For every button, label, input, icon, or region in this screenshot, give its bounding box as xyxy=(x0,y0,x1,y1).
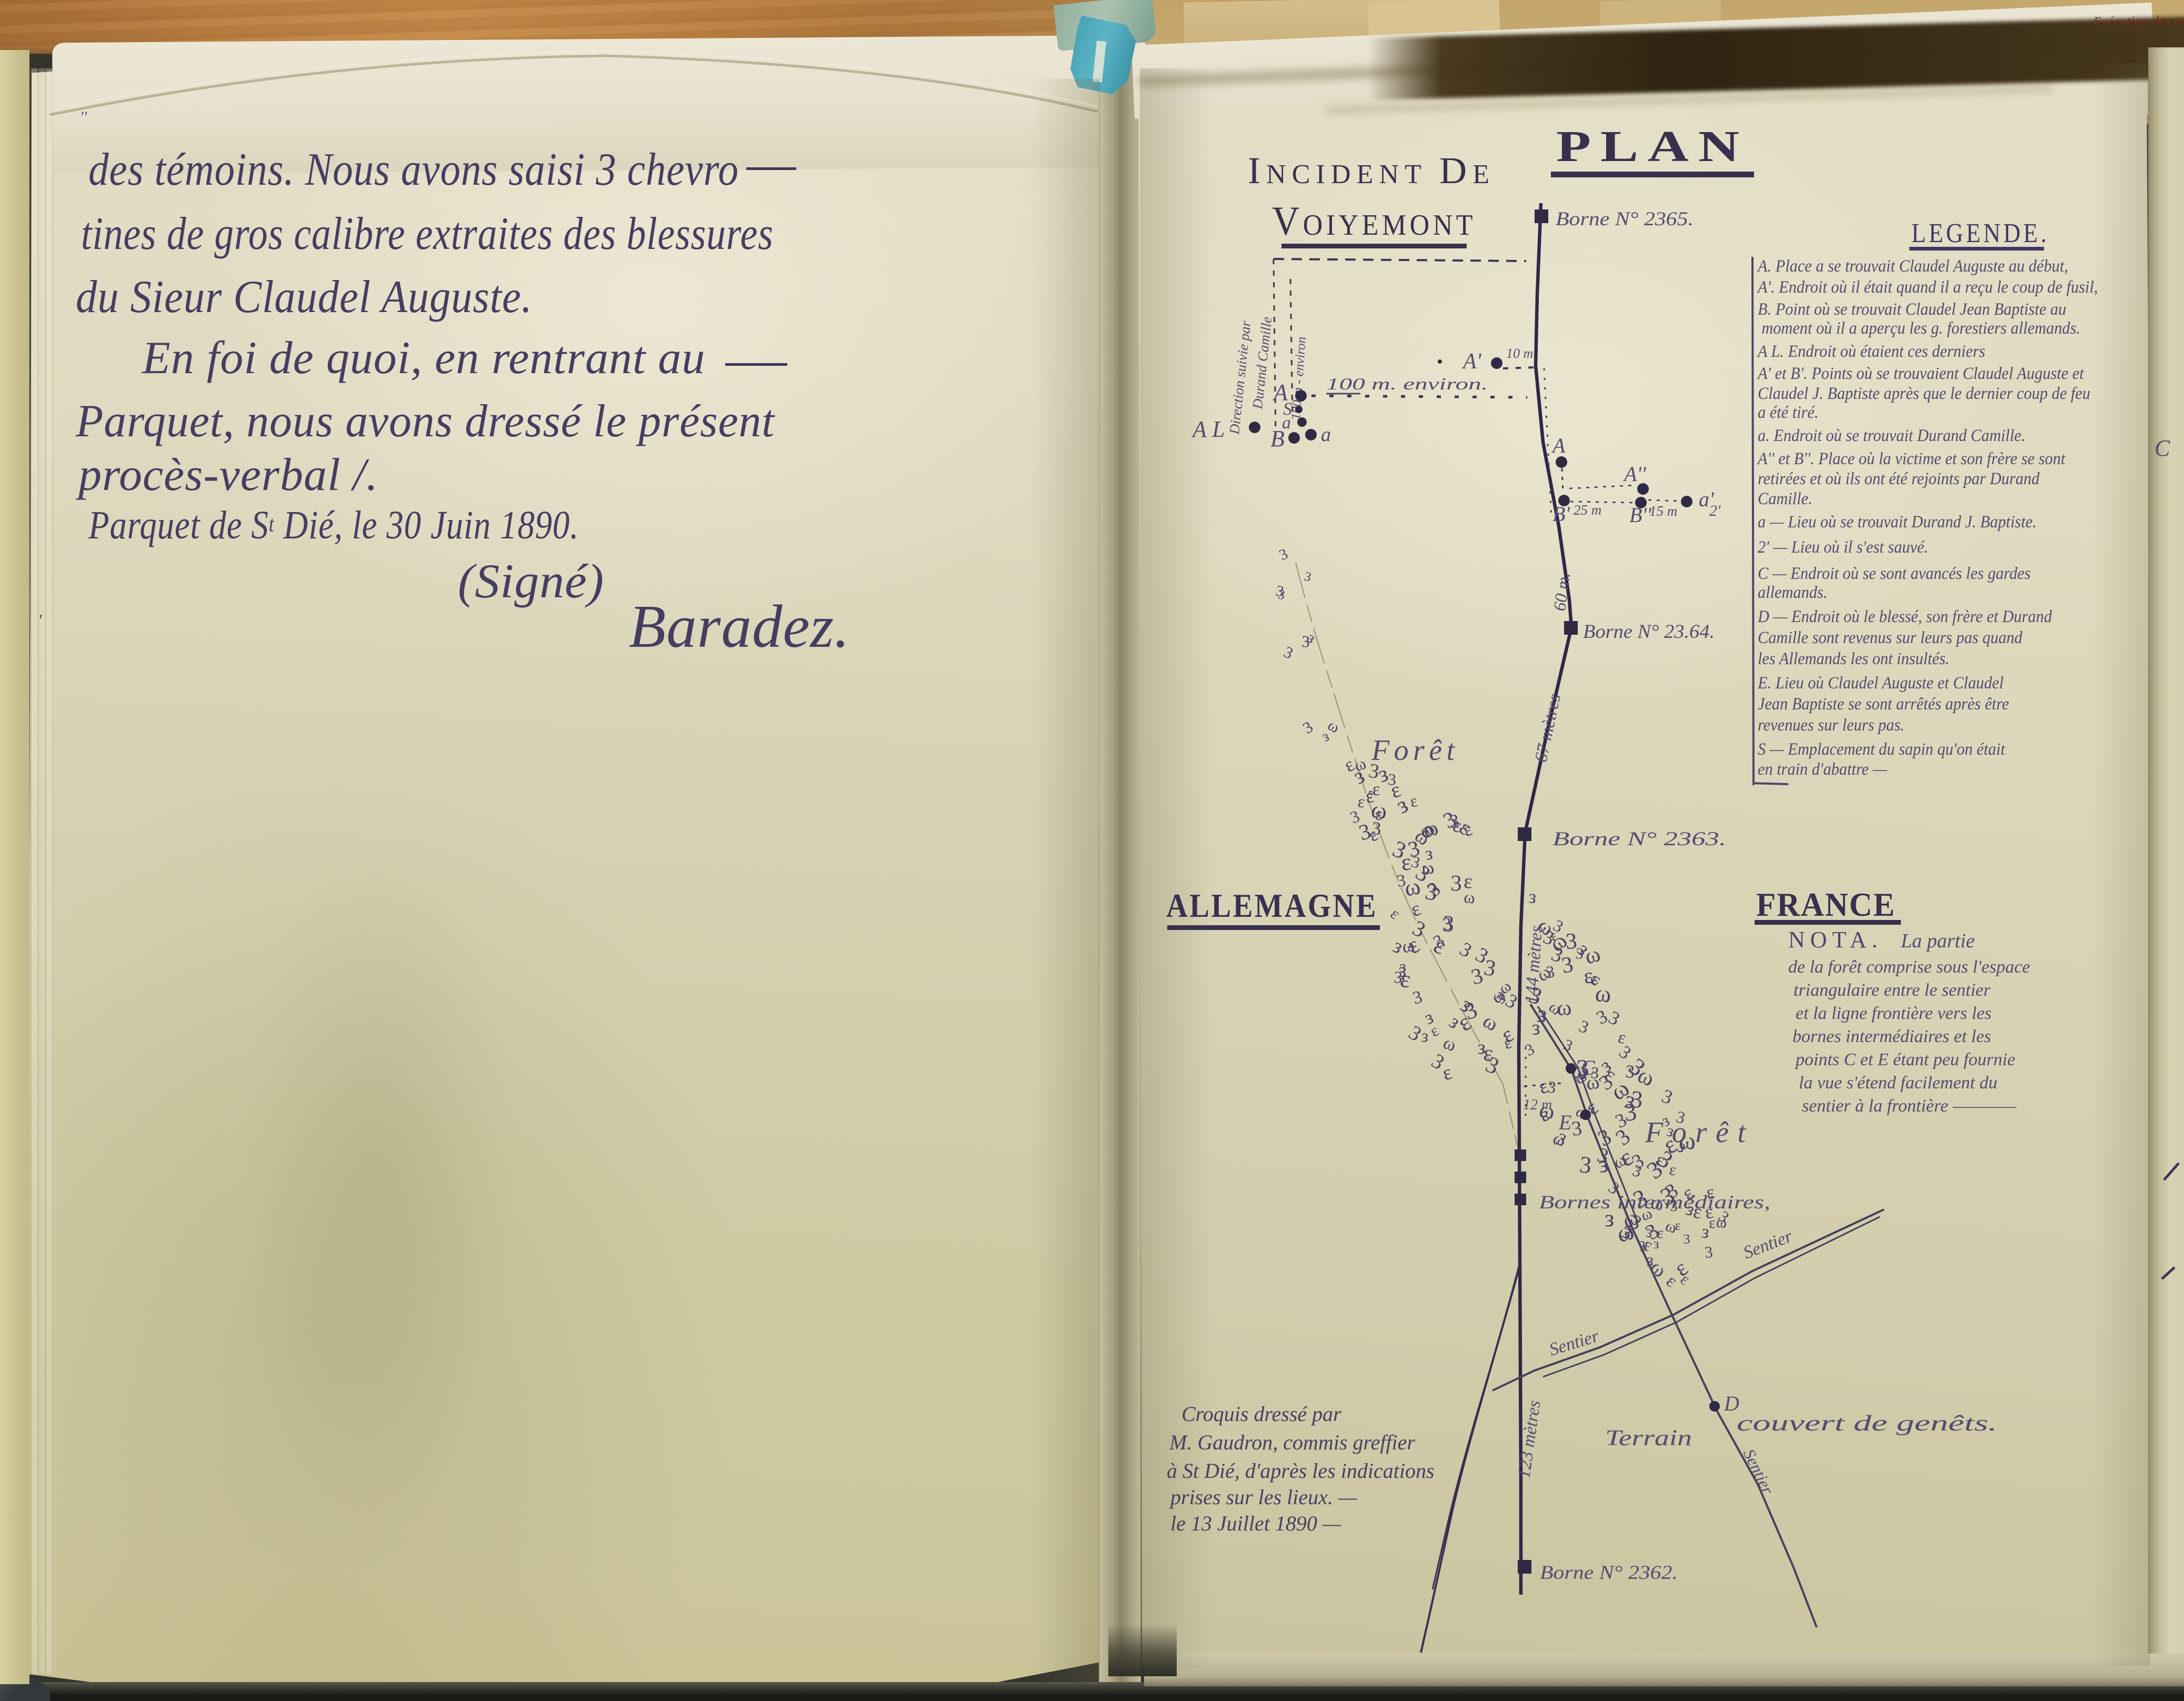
svg-text:3: 3 xyxy=(1456,938,1476,962)
svg-text:Borne N° 2365.: Borne N° 2365. xyxy=(1556,208,1694,230)
svg-text:C: C xyxy=(1581,1056,1596,1079)
svg-text:′′: ′′ xyxy=(80,108,87,126)
svg-text:triangulaire entre le sentier: triangulaire entre le sentier xyxy=(1794,980,1991,1000)
svg-text:à St Dié, d'après les indicati: à St Dié, d'après les indications xyxy=(1167,1459,1435,1483)
svg-text:A' et B'. Points où se trouvai: A' et B'. Points où se trouvaient Claude… xyxy=(1757,364,2085,383)
svg-text:ε: ε xyxy=(1464,870,1473,893)
svg-text:ε: ε xyxy=(1408,791,1419,811)
svg-text:D — Endroit où le blessé, son: D — Endroit où le blessé, son frère et D… xyxy=(1757,607,2052,626)
svg-text:A. Place a se trouvait Claudel: A. Place a se trouvait Claudel Auguste a… xyxy=(1757,256,2068,275)
svg-text:B'': B'' xyxy=(1629,503,1652,527)
svg-text:A'' et B''. Place où la victim: A'' et B''. Place où la victime et son f… xyxy=(1757,449,2066,468)
svg-text:A: A xyxy=(1551,434,1566,457)
svg-text:S — Emplacement du sapin qu'on: S — Emplacement du sapin qu'on était xyxy=(1758,739,2006,758)
svg-text:Borne N° 2363.: Borne N° 2363. xyxy=(1552,828,1726,850)
svg-text:ε: ε xyxy=(1357,792,1366,811)
svg-text:3: 3 xyxy=(1578,1151,1593,1178)
svg-text:a: a xyxy=(1321,424,1331,446)
svg-text:10 m: 10 m xyxy=(1506,346,1533,361)
svg-text:ε: ε xyxy=(1387,904,1404,923)
svg-text:3: 3 xyxy=(1659,1085,1676,1109)
svg-text:3: 3 xyxy=(1281,643,1296,663)
svg-text:couvert de genêts.: couvert de genêts. xyxy=(1737,1412,1997,1436)
svg-text:A'': A'' xyxy=(1622,462,1647,486)
svg-text:revenues sur leurs pas.: revenues sur leurs pas. xyxy=(1758,715,1905,734)
svg-text:12 m: 12 m xyxy=(1523,1097,1552,1113)
svg-text:a. Endroit où se trouvait Dura: a. Endroit où se trouvait Durand Camille… xyxy=(1758,426,2025,445)
svg-text:ε: ε xyxy=(1662,1270,1681,1292)
svg-text:prises sur les lieux. —: prises sur les lieux. — xyxy=(1169,1485,1357,1509)
svg-text:3: 3 xyxy=(1593,1005,1611,1028)
svg-text:з: з xyxy=(1700,1220,1711,1243)
svg-text:a — Lieu où se trouvait Durand: a — Lieu où se trouvait Durand J. Baptis… xyxy=(1758,512,2037,531)
svg-text:Forêt: Forêt xyxy=(1645,1116,1753,1149)
svg-text:de la forêt comprise sous l'es: de la forêt comprise sous l'espace xyxy=(1788,957,2030,977)
svg-text:Sentier: Sentier xyxy=(1740,1446,1778,1497)
svg-text:3: 3 xyxy=(1409,916,1429,943)
svg-text:A': A' xyxy=(1461,349,1482,374)
svg-text:Terrain: Terrain xyxy=(1605,1426,1692,1450)
svg-text:la vue s'étend facilement du: la vue s'étend facilement du xyxy=(1799,1073,1997,1093)
svg-text:3: 3 xyxy=(1277,545,1290,564)
svg-text:3: 3 xyxy=(1371,818,1381,839)
svg-text:3: 3 xyxy=(1595,1143,1611,1168)
svg-text:Borne N° 2362.: Borne N° 2362. xyxy=(1540,1562,1678,1584)
svg-text:LEGENDE.: LEGENDE. xyxy=(1911,218,2049,248)
svg-text:3: 3 xyxy=(1301,632,1310,651)
svg-text:3: 3 xyxy=(1299,717,1316,737)
svg-text:ε: ε xyxy=(1497,1022,1518,1048)
svg-text:67 mètres: 67 mètres xyxy=(1531,692,1565,764)
svg-text:Borne N° 23.64.: Borne N° 23.64. xyxy=(1583,621,1715,643)
svg-text:Jean Baptiste se sont arrêtés: Jean Baptiste se sont arrêtés après être xyxy=(1758,694,2009,713)
svg-text:a': a' xyxy=(1699,487,1715,511)
svg-text:2' — Lieu où il s'est sauvé.: 2' — Lieu où il s'est sauvé. xyxy=(1758,537,1928,556)
svg-text:les Allemands les ont insultés: les Allemands les ont insultés. xyxy=(1758,649,1949,668)
svg-text:allemands.: allemands. xyxy=(1758,583,1827,602)
svg-text:retirées et où ils ont été rej: retirées et où ils ont été rejoints par … xyxy=(1758,469,2040,488)
svg-text:Direction suivie par: Direction suivie par xyxy=(1226,320,1254,436)
svg-text:Sentier: Sentier xyxy=(1547,1326,1602,1360)
svg-text:Camille sont revenus sur leurs: Camille sont revenus sur leurs pas quand xyxy=(1758,628,2022,647)
svg-text:points C et E étant peu fourni: points C et E étant peu fournie xyxy=(1795,1050,2015,1069)
svg-text:a été tiré.: a été tiré. xyxy=(1758,403,1818,422)
svg-text:moment où il a aperçu les g. f: moment où il a aperçu les g. forestiers … xyxy=(1761,318,2080,337)
svg-text:з: з xyxy=(1477,1036,1486,1059)
svg-text:B': B' xyxy=(1552,502,1570,526)
svg-text:Durand Camille: Durand Camille xyxy=(1249,316,1275,410)
svg-text:A'. Endroit où il était quand: A'. Endroit où il était quand il a reçu … xyxy=(1757,277,2098,296)
svg-text:INCIDENT DE: INCIDENT DE xyxy=(1248,149,1495,192)
svg-text:M. Gaudron, commis greffier: M. Gaudron, commis greffier xyxy=(1169,1430,1415,1454)
svg-text:з: з xyxy=(1654,1236,1659,1252)
svg-text:A L. Endroit où étaient ces de: A L. Endroit où étaient ces derniers xyxy=(1757,342,1985,361)
svg-text:Croquis dressé par: Croquis dressé par xyxy=(1181,1402,1341,1426)
svg-text:ω: ω xyxy=(1557,996,1572,1020)
svg-text:Sentier: Sentier xyxy=(1741,1226,1796,1263)
svg-text:le 13 Juillet 1890 —: le 13 Juillet 1890 — xyxy=(1170,1512,1341,1535)
svg-text:Bornes intermédiaires,: Bornes intermédiaires, xyxy=(1539,1192,1770,1213)
svg-text:ε: ε xyxy=(1372,779,1380,799)
svg-text:PLAN: PLAN xyxy=(1556,122,1749,171)
svg-text:3: 3 xyxy=(1704,1243,1714,1262)
svg-text:ALLEMAGNE: ALLEMAGNE xyxy=(1166,887,1378,924)
svg-text:3: 3 xyxy=(1522,1039,1537,1059)
svg-text:C: C xyxy=(2155,435,2170,461)
svg-text:3: 3 xyxy=(1683,1231,1690,1247)
svg-text:E. Lieu où Claudel Auguste et: E. Lieu où Claudel Auguste et Claudel xyxy=(1757,673,2003,692)
svg-text:3: 3 xyxy=(1410,987,1424,1008)
svg-text:з: з xyxy=(1528,886,1537,907)
svg-text:3: 3 xyxy=(1394,967,1403,987)
svg-text:3: 3 xyxy=(1605,1006,1623,1029)
svg-text:ω: ω xyxy=(1664,1216,1679,1237)
svg-text:100 m. environ.: 100 m. environ. xyxy=(1326,374,1488,393)
svg-text:sentier à la frontière ————: sentier à la frontière ———— xyxy=(1802,1096,2017,1116)
svg-text:C — Endroit où se sont avancés: C — Endroit où se sont avancés les garde… xyxy=(1758,564,2031,583)
svg-text:3: 3 xyxy=(1450,871,1462,896)
svg-text:en train d'abattre —: en train d'abattre — xyxy=(1758,759,1887,778)
svg-text:FRANCE: FRANCE xyxy=(1756,886,1896,923)
svg-text:et la ligne frontière vers les: et la ligne frontière vers les xyxy=(1796,1004,1991,1023)
svg-text:123 mètres: 123 mètres xyxy=(1514,1399,1544,1480)
svg-text:VOIYEMONT: VOIYEMONT xyxy=(1272,198,1476,244)
svg-text:ω: ω xyxy=(1715,1212,1728,1232)
svg-text:ω: ω xyxy=(1479,1009,1502,1036)
svg-text:ω: ω xyxy=(1325,716,1343,736)
svg-text:A L: A L xyxy=(1191,416,1225,442)
svg-text:B. Point où se trouvait Claude: B. Point où se trouvait Claudel Jean Bap… xyxy=(1758,299,2066,318)
svg-text:La partie: La partie xyxy=(1900,930,1975,952)
svg-text:Forêt: Forêt xyxy=(1371,734,1461,767)
svg-text:Claudel J. Baptiste après que: Claudel J. Baptiste après que le dernier… xyxy=(1758,384,2090,403)
svg-text:3: 3 xyxy=(1303,569,1313,585)
svg-text:NOTA.: NOTA. xyxy=(1788,927,1883,953)
svg-text:15 m: 15 m xyxy=(1649,503,1677,519)
svg-text:25 m: 25 m xyxy=(1574,502,1601,518)
svg-text:bornes intermédiaires et les: bornes intermédiaires et les xyxy=(1792,1027,1991,1046)
svg-text:3: 3 xyxy=(1575,945,1584,963)
svg-text:Camille.: Camille. xyxy=(1758,489,1812,508)
svg-text:E: E xyxy=(1558,1110,1571,1134)
svg-text:3: 3 xyxy=(1576,1017,1591,1038)
svg-text:B: B xyxy=(1270,426,1285,452)
svg-text:′: ′ xyxy=(38,611,42,631)
